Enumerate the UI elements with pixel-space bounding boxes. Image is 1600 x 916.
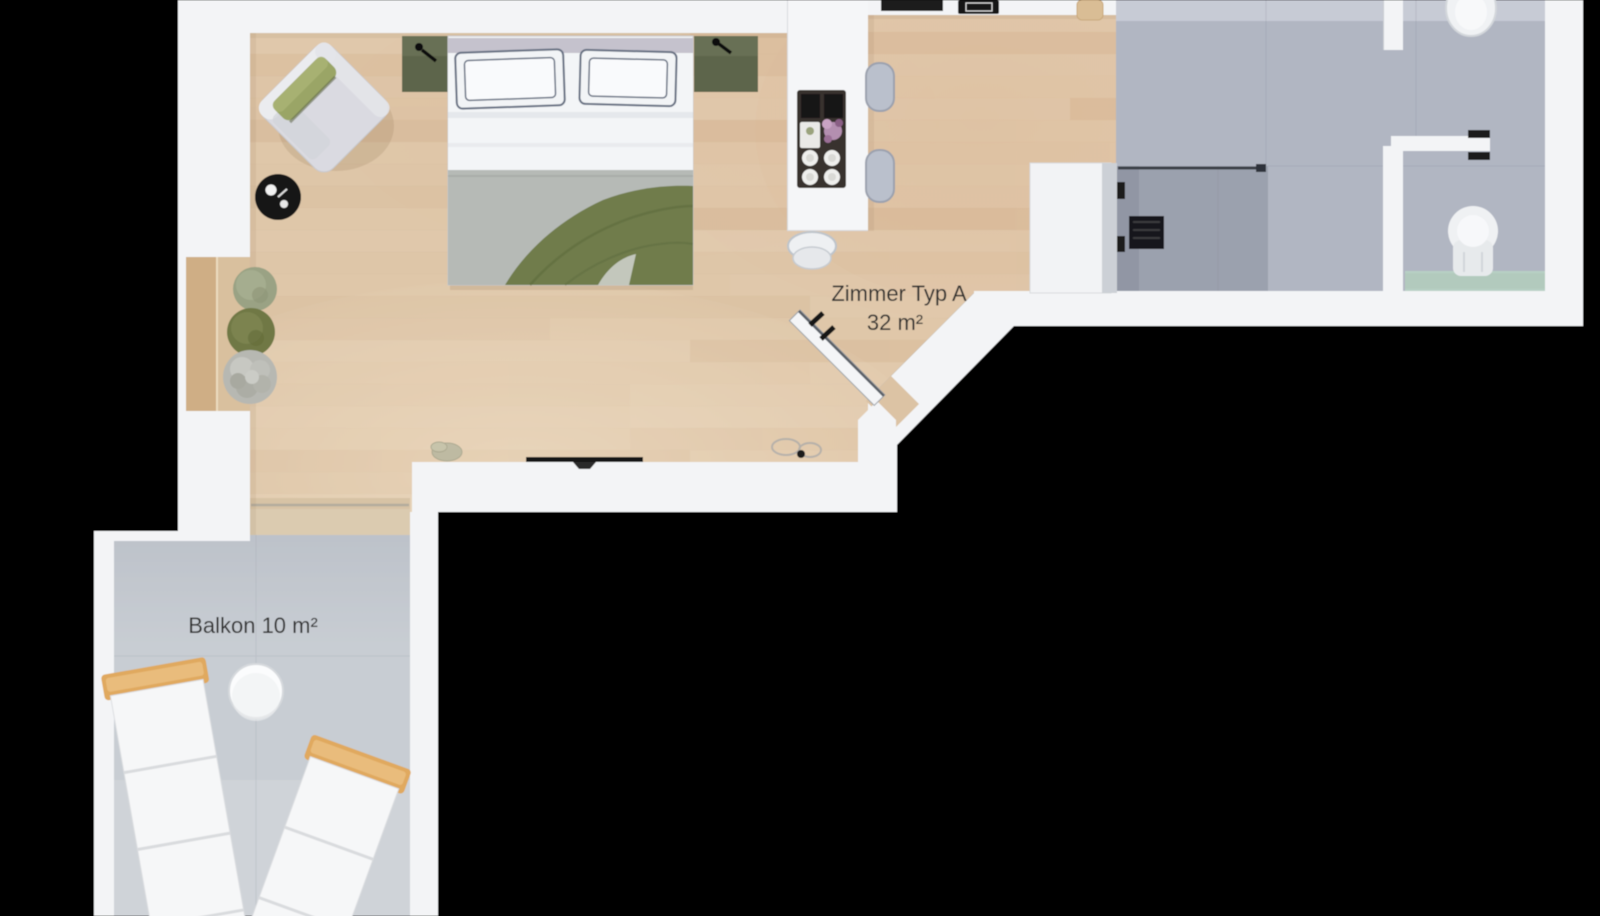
svg-text:Balkon 10 m²: Balkon 10 m²: [188, 613, 318, 638]
svg-text:Zimmer Typ A: Zimmer Typ A: [831, 281, 967, 306]
svg-text:32 m²: 32 m²: [867, 310, 923, 335]
